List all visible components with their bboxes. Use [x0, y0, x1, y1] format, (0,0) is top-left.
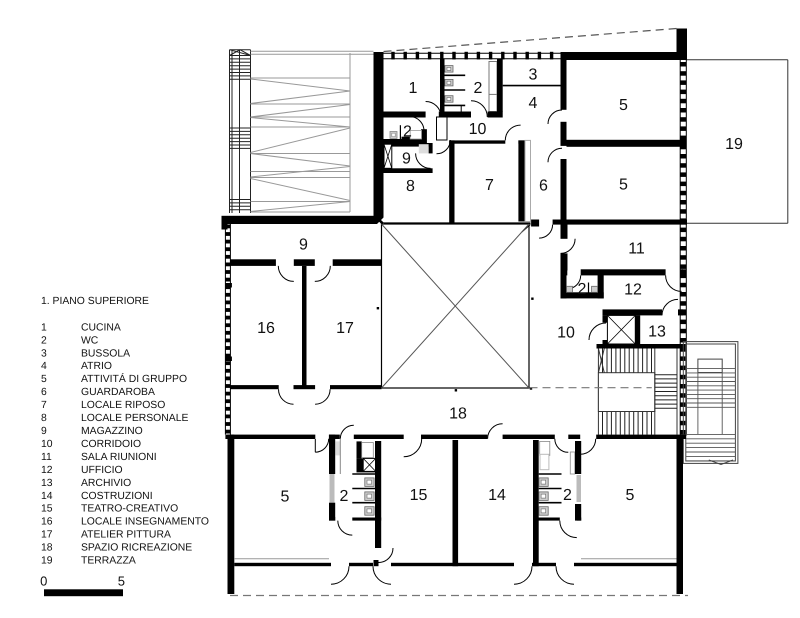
svg-text:BUSSOLA: BUSSOLA [81, 348, 130, 359]
svg-text:ATRIO: ATRIO [81, 361, 112, 372]
svg-text:2: 2 [563, 487, 572, 504]
svg-text:SPAZIO RICREAZIONE: SPAZIO RICREAZIONE [81, 543, 192, 554]
svg-text:0: 0 [40, 574, 47, 589]
svg-text:5: 5 [281, 489, 290, 506]
svg-text:COSTRUZIONI: COSTRUZIONI [81, 491, 153, 502]
svg-text:5: 5 [619, 97, 628, 114]
svg-text:TERRAZZA: TERRAZZA [81, 556, 136, 567]
svg-text:MAGAZZINO: MAGAZZINO [81, 426, 143, 437]
svg-text:10: 10 [41, 439, 53, 450]
svg-text:WC: WC [81, 335, 99, 346]
svg-text:2: 2 [41, 335, 47, 346]
svg-text:3: 3 [41, 348, 47, 359]
svg-text:18: 18 [449, 406, 467, 423]
svg-text:5: 5 [619, 177, 628, 194]
svg-text:3: 3 [529, 67, 538, 84]
svg-text:16: 16 [41, 517, 53, 528]
svg-text:7: 7 [41, 400, 47, 411]
svg-text:9: 9 [299, 237, 308, 254]
svg-text:4: 4 [529, 95, 538, 112]
svg-text:17: 17 [41, 530, 53, 541]
svg-text:2: 2 [578, 281, 587, 298]
svg-text:ATELIER PITTURA: ATELIER PITTURA [81, 530, 171, 541]
svg-text:CUCINA: CUCINA [81, 322, 121, 333]
svg-text:LOCALE INSEGNAMENTO: LOCALE INSEGNAMENTO [81, 517, 209, 528]
svg-text:19: 19 [41, 556, 53, 567]
svg-text:4: 4 [41, 361, 47, 372]
svg-text:16: 16 [257, 320, 275, 337]
svg-text:14: 14 [41, 491, 53, 502]
svg-text:5: 5 [41, 374, 47, 385]
svg-text:10: 10 [557, 325, 575, 342]
svg-text:LOCALE RIPOSO: LOCALE RIPOSO [81, 400, 165, 411]
svg-text:8: 8 [406, 178, 415, 195]
svg-text:5: 5 [118, 574, 125, 589]
svg-text:2: 2 [474, 80, 483, 97]
svg-text:ARCHIVIO: ARCHIVIO [81, 478, 131, 489]
svg-text:GUARDAROBA: GUARDAROBA [81, 387, 155, 398]
svg-text:14: 14 [488, 487, 506, 504]
svg-text:15: 15 [41, 504, 53, 515]
svg-text:6: 6 [41, 387, 47, 398]
svg-text:12: 12 [624, 282, 642, 299]
svg-text:1. PIANO SUPERIORE: 1. PIANO SUPERIORE [41, 296, 149, 307]
svg-text:12: 12 [41, 465, 53, 476]
svg-text:7: 7 [485, 177, 494, 194]
svg-text:11: 11 [628, 241, 645, 258]
svg-text:19: 19 [725, 136, 743, 153]
svg-text:1: 1 [41, 322, 47, 333]
svg-text:CORRIDOIO: CORRIDOIO [81, 439, 141, 450]
svg-text:15: 15 [410, 487, 428, 504]
svg-text:9: 9 [41, 426, 47, 437]
svg-text:18: 18 [41, 543, 53, 554]
svg-text:UFFICIO: UFFICIO [81, 465, 123, 476]
svg-text:8: 8 [41, 413, 47, 424]
svg-text:LOCALE PERSONALE: LOCALE PERSONALE [81, 413, 188, 424]
svg-text:5: 5 [626, 487, 635, 504]
svg-text:ATTIVITÁ DI GRUPPO: ATTIVITÁ DI GRUPPO [81, 372, 187, 385]
svg-text:17: 17 [336, 320, 354, 337]
svg-text:SALA RIUNIONI: SALA RIUNIONI [81, 452, 157, 463]
svg-text:1: 1 [409, 80, 418, 97]
svg-text:13: 13 [41, 478, 53, 489]
svg-text:2: 2 [403, 124, 412, 141]
svg-text:9: 9 [402, 151, 411, 168]
svg-text:10: 10 [469, 121, 487, 138]
svg-text:2: 2 [340, 488, 349, 505]
svg-text:6: 6 [539, 178, 548, 195]
svg-text:TEATRO-CREATIVO: TEATRO-CREATIVO [81, 504, 178, 515]
svg-text:13: 13 [648, 324, 666, 341]
svg-text:11: 11 [41, 452, 52, 463]
